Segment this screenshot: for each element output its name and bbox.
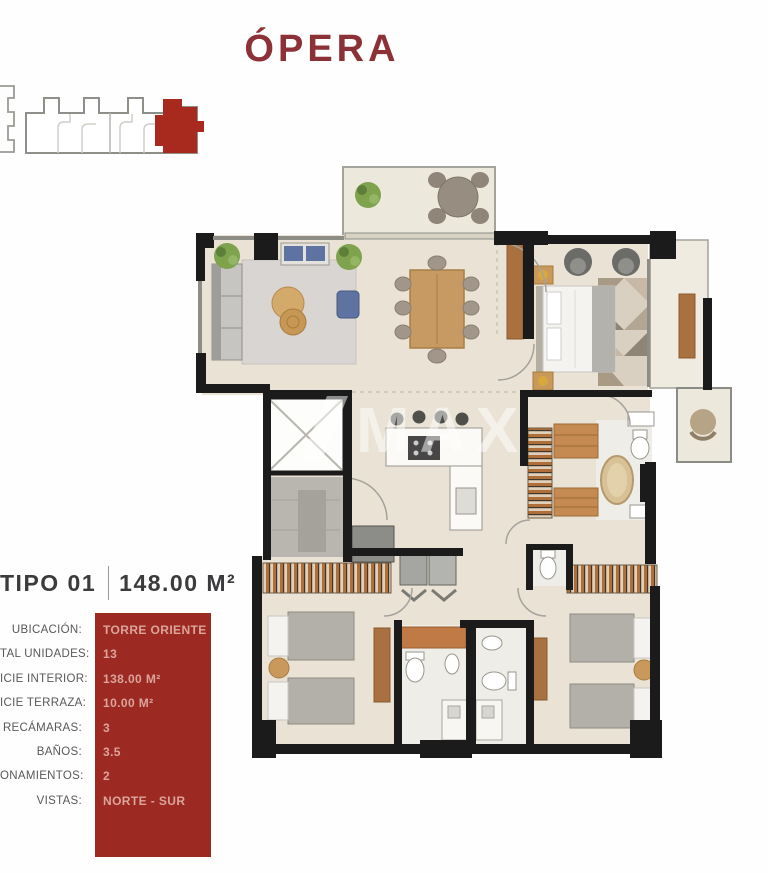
wardrobe-door-icon xyxy=(507,239,523,339)
spec-label: TAL UNIDADES: xyxy=(0,642,88,666)
spec-value: 10.00 M² xyxy=(95,691,211,715)
toilet-icon xyxy=(540,557,556,579)
unit-area-value: 148.00 M² xyxy=(119,570,236,597)
sink-icon xyxy=(482,636,502,650)
spec-value: 3 xyxy=(95,716,211,740)
powder-room xyxy=(533,548,566,586)
building-key-plan xyxy=(0,70,212,165)
keyplan-highlighted-unit xyxy=(155,99,204,153)
toilet-icon xyxy=(482,672,516,690)
spec-value: 13 xyxy=(95,642,211,666)
unit-type-label: TIPO 01 xyxy=(0,570,96,597)
plant-icon xyxy=(214,243,240,269)
spec-label: BAÑOS: xyxy=(0,740,88,764)
floor-plan: MAX xyxy=(190,160,742,778)
toilet-icon xyxy=(406,652,424,682)
terrace-chair-icon xyxy=(690,409,716,439)
closet-icon xyxy=(263,563,391,593)
sink-icon xyxy=(456,488,476,514)
spec-label: VISTAS: xyxy=(0,789,88,813)
spec-values-box: TORRE ORIENTE 13 138.00 M² 10.00 M² 3 3.… xyxy=(95,613,211,857)
spec-label: UBICACIÓN: xyxy=(0,618,88,642)
spec-value: 138.00 M² xyxy=(95,667,211,691)
living-room xyxy=(212,243,362,364)
desk-icon xyxy=(533,638,547,700)
bath-vanity-icon xyxy=(398,627,466,648)
spec-value: 2 xyxy=(95,764,211,788)
entry-hall xyxy=(267,477,345,557)
header-divider xyxy=(108,566,109,600)
closet-rack-icon xyxy=(528,428,552,518)
desk-icon xyxy=(374,628,390,702)
spec-label: ICIE INTERIOR: xyxy=(0,667,88,691)
plant-icon xyxy=(336,244,362,270)
sofa-icon xyxy=(212,264,242,360)
spec-value: TORRE ORIENTE xyxy=(95,618,211,642)
spec-value: NORTE - SUR xyxy=(95,789,211,813)
refrigerator-icon xyxy=(352,526,394,562)
floorplan-page: ÓPERA xyxy=(0,0,768,873)
project-title: ÓPERA xyxy=(222,28,422,71)
sink-icon xyxy=(445,654,459,674)
spec-label: ICIE TERRAZA: xyxy=(0,691,88,715)
closet-icon xyxy=(567,565,657,593)
keyplan-partial-unit-icon xyxy=(0,86,14,152)
balcony-bench-icon xyxy=(679,294,695,358)
spec-label: ONAMIENTOS: xyxy=(0,764,88,788)
spec-value: 3.5 xyxy=(95,740,211,764)
plant-icon xyxy=(355,182,381,208)
bathrooms-center xyxy=(398,625,530,747)
spec-labels: UBICACIÓN: TAL UNIDADES: ICIE INTERIOR: … xyxy=(0,613,88,813)
loveseat-icon xyxy=(281,243,329,265)
vanity-sink-icon xyxy=(628,412,654,426)
unit-type-header: TIPO 01 148.00 M² xyxy=(0,564,250,602)
spec-label: RECÁMARAS: xyxy=(0,716,88,740)
watermark-text: MAX xyxy=(356,394,528,466)
side-table-icon xyxy=(269,658,289,678)
toilet-icon xyxy=(631,430,649,459)
accent-chair-icon xyxy=(337,291,359,318)
king-bed-icon xyxy=(536,286,615,372)
